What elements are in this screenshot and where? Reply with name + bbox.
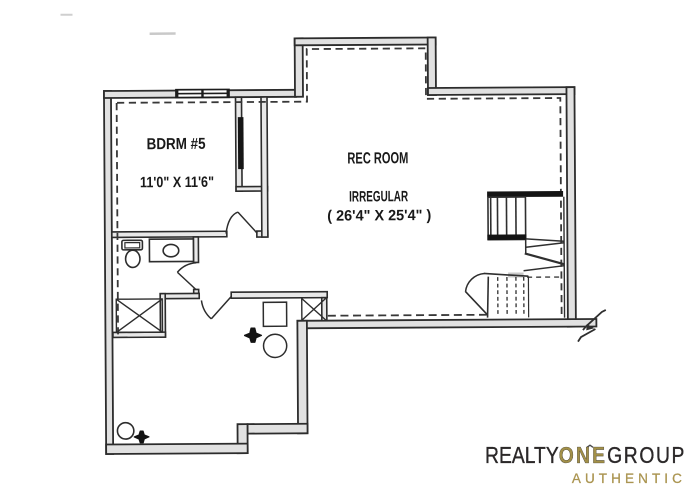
svg-text:( 26'4" X 25'4" ): ( 26'4" X 25'4" ) [327, 207, 431, 225]
svg-text:IRREGULAR: IRREGULAR [349, 188, 408, 205]
svg-text:BDRM #5: BDRM #5 [147, 136, 206, 153]
svg-text:11'0" X 11'6": 11'0" X 11'6" [140, 174, 214, 191]
svg-text:REC ROOM: REC ROOM [347, 150, 408, 167]
